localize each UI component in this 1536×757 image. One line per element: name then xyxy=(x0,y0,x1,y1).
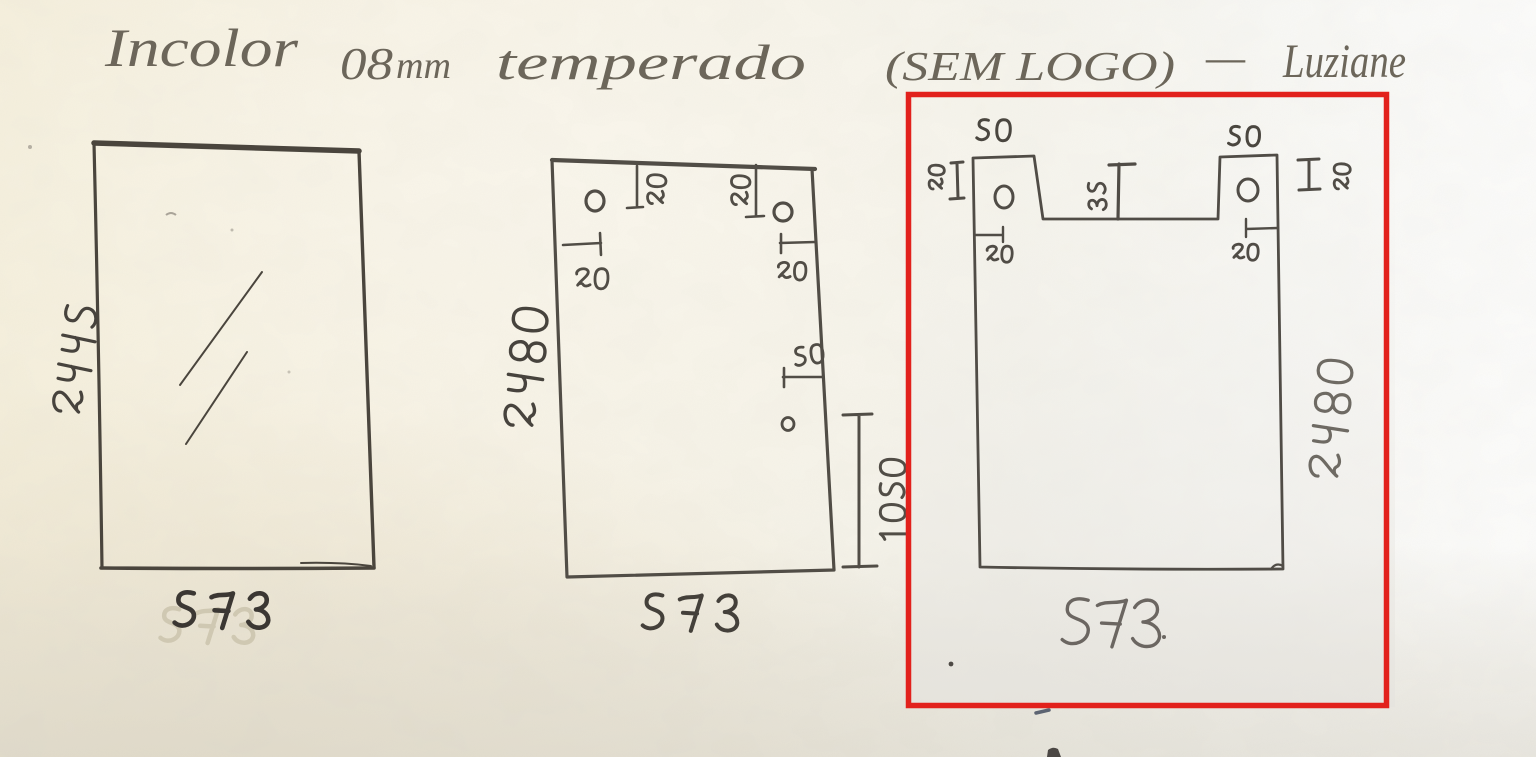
svg-text:08: 08 xyxy=(340,39,393,89)
svg-text:mm: mm xyxy=(396,45,451,87)
svg-text:Incolor: Incolor xyxy=(104,18,299,78)
svg-text:(SEM LOGO): (SEM LOGO) xyxy=(885,43,1175,89)
svg-text:—: — xyxy=(1205,33,1246,82)
svg-text:Luziane: Luziane xyxy=(1282,35,1406,88)
svg-text:temperado: temperado xyxy=(496,34,806,90)
